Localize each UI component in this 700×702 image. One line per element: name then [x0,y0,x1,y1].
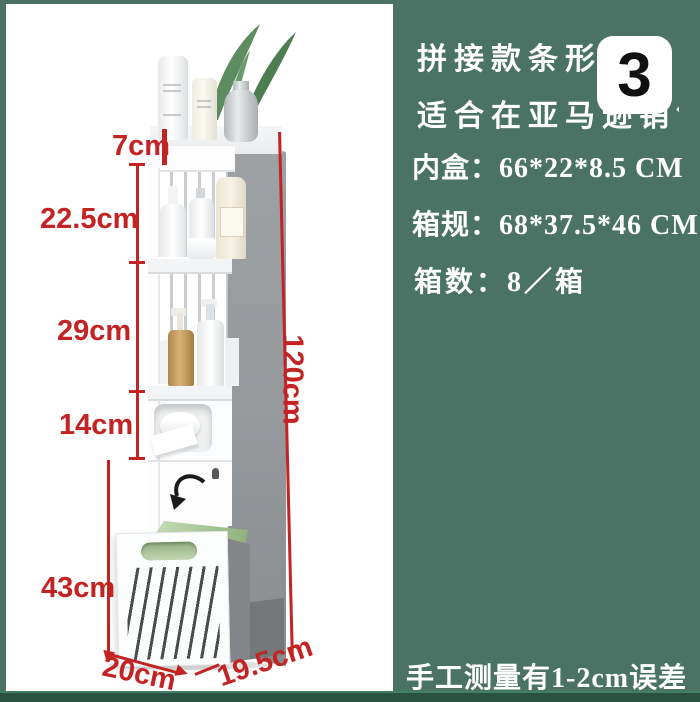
dim-tissue-section: 14cm [59,409,133,442]
cosmetic-tube-large [158,56,188,140]
panel-divider [148,460,232,462]
cosmetic-tube-small [192,78,217,140]
lotion-bottle [160,204,186,259]
keyhole [212,468,219,479]
glass-vase [224,90,258,142]
dim-total-height: 120cm [276,334,309,424]
dim-drawer: 43cm [41,572,115,605]
cream-jar [187,238,216,259]
spec-carton-size: 箱规：68*37.5*46 CM [412,203,699,243]
dim-tick [129,163,145,166]
shelf-board [148,257,232,274]
bottom-border-strip [0,691,700,702]
product-spec-image: 7cm 22.5cm 29cm 14cm 43cm 120cm 20cm 19.… [0,0,700,700]
dim-upper-shelf: 22.5cm [40,203,138,236]
dim-top-shelf: 7cm [112,130,170,163]
shelf-board [148,384,232,401]
shampoo-bottle [216,177,246,259]
dim-tick [129,390,145,393]
white-box [225,338,239,386]
dim-line-43cm [107,460,110,654]
cabinet-left-stile [148,168,160,530]
spec-carton-quantity: 箱数：8／箱 [414,260,586,300]
amber-soap-bottle [168,330,194,386]
dim-middle-shelf: 29cm [57,315,131,348]
measurement-note: 手工测量有1-2cm误差 [406,656,687,696]
drawer-slats [126,566,220,660]
index-number-badge: 3 [597,36,672,114]
drawer-front [116,531,231,667]
spray-bottle [168,186,178,206]
drawer-handle-cutout [141,541,197,560]
spec-inner-box: 内盒：66*22*8.5 CM [412,146,684,186]
open-direction-arrow-icon [164,472,210,520]
white-pump-bottle [197,320,224,386]
dim-tick [129,261,145,264]
dim-tick [129,457,145,460]
